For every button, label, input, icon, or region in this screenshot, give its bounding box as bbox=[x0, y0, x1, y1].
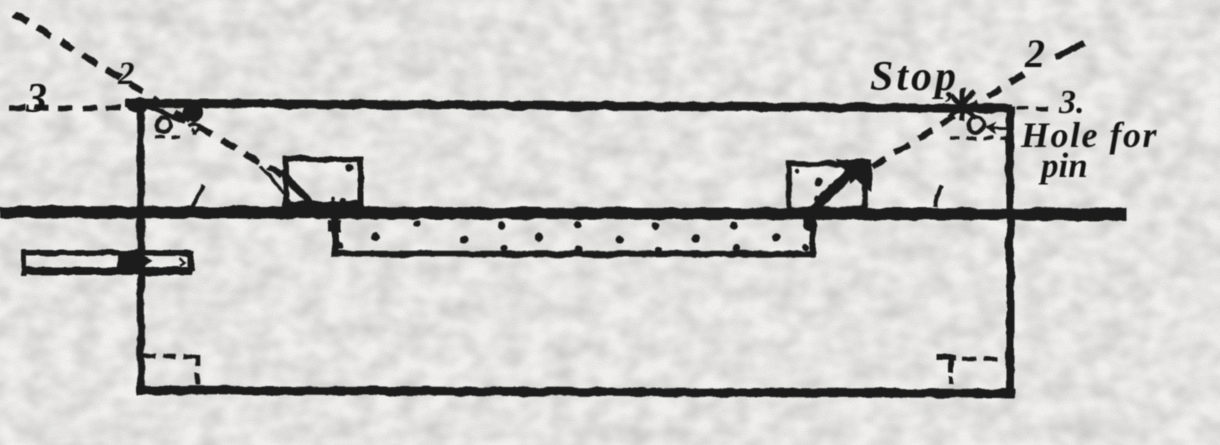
svg-text:2: 2 bbox=[1024, 31, 1045, 76]
svg-text:2: 2 bbox=[117, 56, 135, 92]
svg-text:pin: pin bbox=[1038, 146, 1088, 185]
svg-text:3: 3 bbox=[25, 76, 47, 122]
svg-text:,: , bbox=[945, 68, 955, 105]
svg-text:3.: 3. bbox=[1058, 84, 1085, 121]
